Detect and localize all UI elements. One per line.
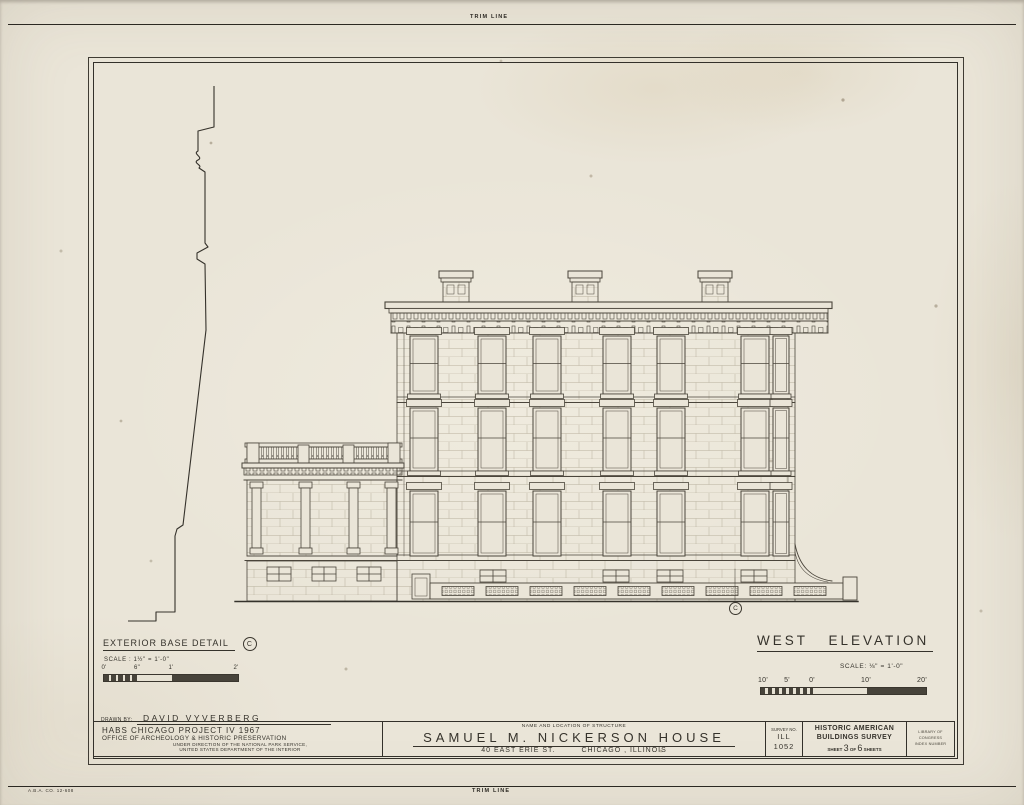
address-city: CHICAGO , ILLINOIS [581, 747, 666, 754]
habs-line-1: HISTORIC AMERICAN [803, 725, 906, 733]
west-elevation-tick: 10' [861, 677, 871, 684]
title-block-structure: NAME AND LOCATION OF STRUCTURE SAMUEL M.… [383, 722, 766, 756]
drawing-sheet: TRIM LINE TRIM LINE A.B.A. CO. 12-608 [0, 0, 1024, 805]
west-elevation-scale-label: SCALE: ⅛" = 1'-0" [840, 663, 903, 670]
survey-state: ILL [766, 732, 802, 741]
west-elevation-scale-bar [760, 687, 927, 695]
habs-line-2: BUILDINGS SURVEY [803, 734, 906, 742]
office-line: OFFICE OF ARCHEOLOGY & HISTORIC PRESERVA… [102, 735, 378, 742]
structure-address: 40 EAST ERIE ST.CHICAGO , ILLINOIS [383, 747, 765, 754]
sheet-word: SHEET [827, 747, 842, 752]
loc-line-1: LIBRARY OF CONGRESS [907, 730, 954, 741]
structure-heading: NAME AND LOCATION OF STRUCTURE [383, 724, 765, 729]
west-elevation-tick: 10' [758, 677, 768, 684]
sheet-number: 3 [844, 743, 849, 753]
west-elevation-drawing [235, 271, 858, 602]
base-detail-scale-bar [103, 674, 239, 682]
direction-line-2: UNITED STATES DEPARTMENT OF THE INTERIOR [102, 747, 378, 752]
address-street: 40 EAST ERIE ST. [481, 747, 555, 754]
title-block-loc: LIBRARY OF CONGRESS INDEX NUMBER [907, 722, 954, 756]
title-block-agency: HABS CHICAGO PROJECT IV 1967 OFFICE OF A… [94, 722, 383, 756]
west-elevation-tick: 20' [917, 677, 927, 684]
detail-marker-c: C [729, 602, 742, 615]
title-block: HABS CHICAGO PROJECT IV 1967 OFFICE OF A… [93, 721, 955, 757]
base-detail-tick: 6" [134, 665, 140, 671]
title-block-habs: HISTORIC AMERICAN BUILDINGS SURVEY SHEET… [803, 722, 907, 756]
base-detail-tick: 0' [101, 665, 106, 671]
title-block-survey: SURVEY NO. ILL 1052 [766, 722, 803, 756]
west-elevation-tick: 0' [809, 677, 815, 684]
sheets-word: SHEETS [864, 747, 882, 752]
base-detail-marker-c: C [243, 637, 257, 651]
base-detail-scale-label: SCALE : 1½" = 1'-0" [104, 657, 169, 663]
survey-number: 1052 [766, 742, 802, 751]
project-line: HABS CHICAGO PROJECT IV 1967 [102, 726, 378, 735]
of-word: OF [850, 747, 856, 752]
base-detail-tick: 2' [233, 665, 238, 671]
base-detail-title: EXTERIOR BASE DETAILC [103, 637, 257, 651]
west-elevation-title: WEST ELEVATION [757, 633, 933, 652]
structure-name: SAMUEL M. NICKERSON HOUSE [383, 730, 765, 745]
base-detail-title-text: EXTERIOR BASE DETAIL [103, 638, 235, 651]
sheet-total: 6 [857, 743, 862, 753]
west-elevation-tick: 5' [784, 677, 790, 684]
sheet-count-line: SHEET 3 OF 6 SHEETS [803, 743, 906, 753]
base-detail-profile [128, 86, 214, 621]
base-detail-tick: 1' [168, 665, 173, 671]
loc-line-2: INDEX NUMBER [907, 742, 954, 748]
architectural-drawing [0, 0, 1024, 805]
